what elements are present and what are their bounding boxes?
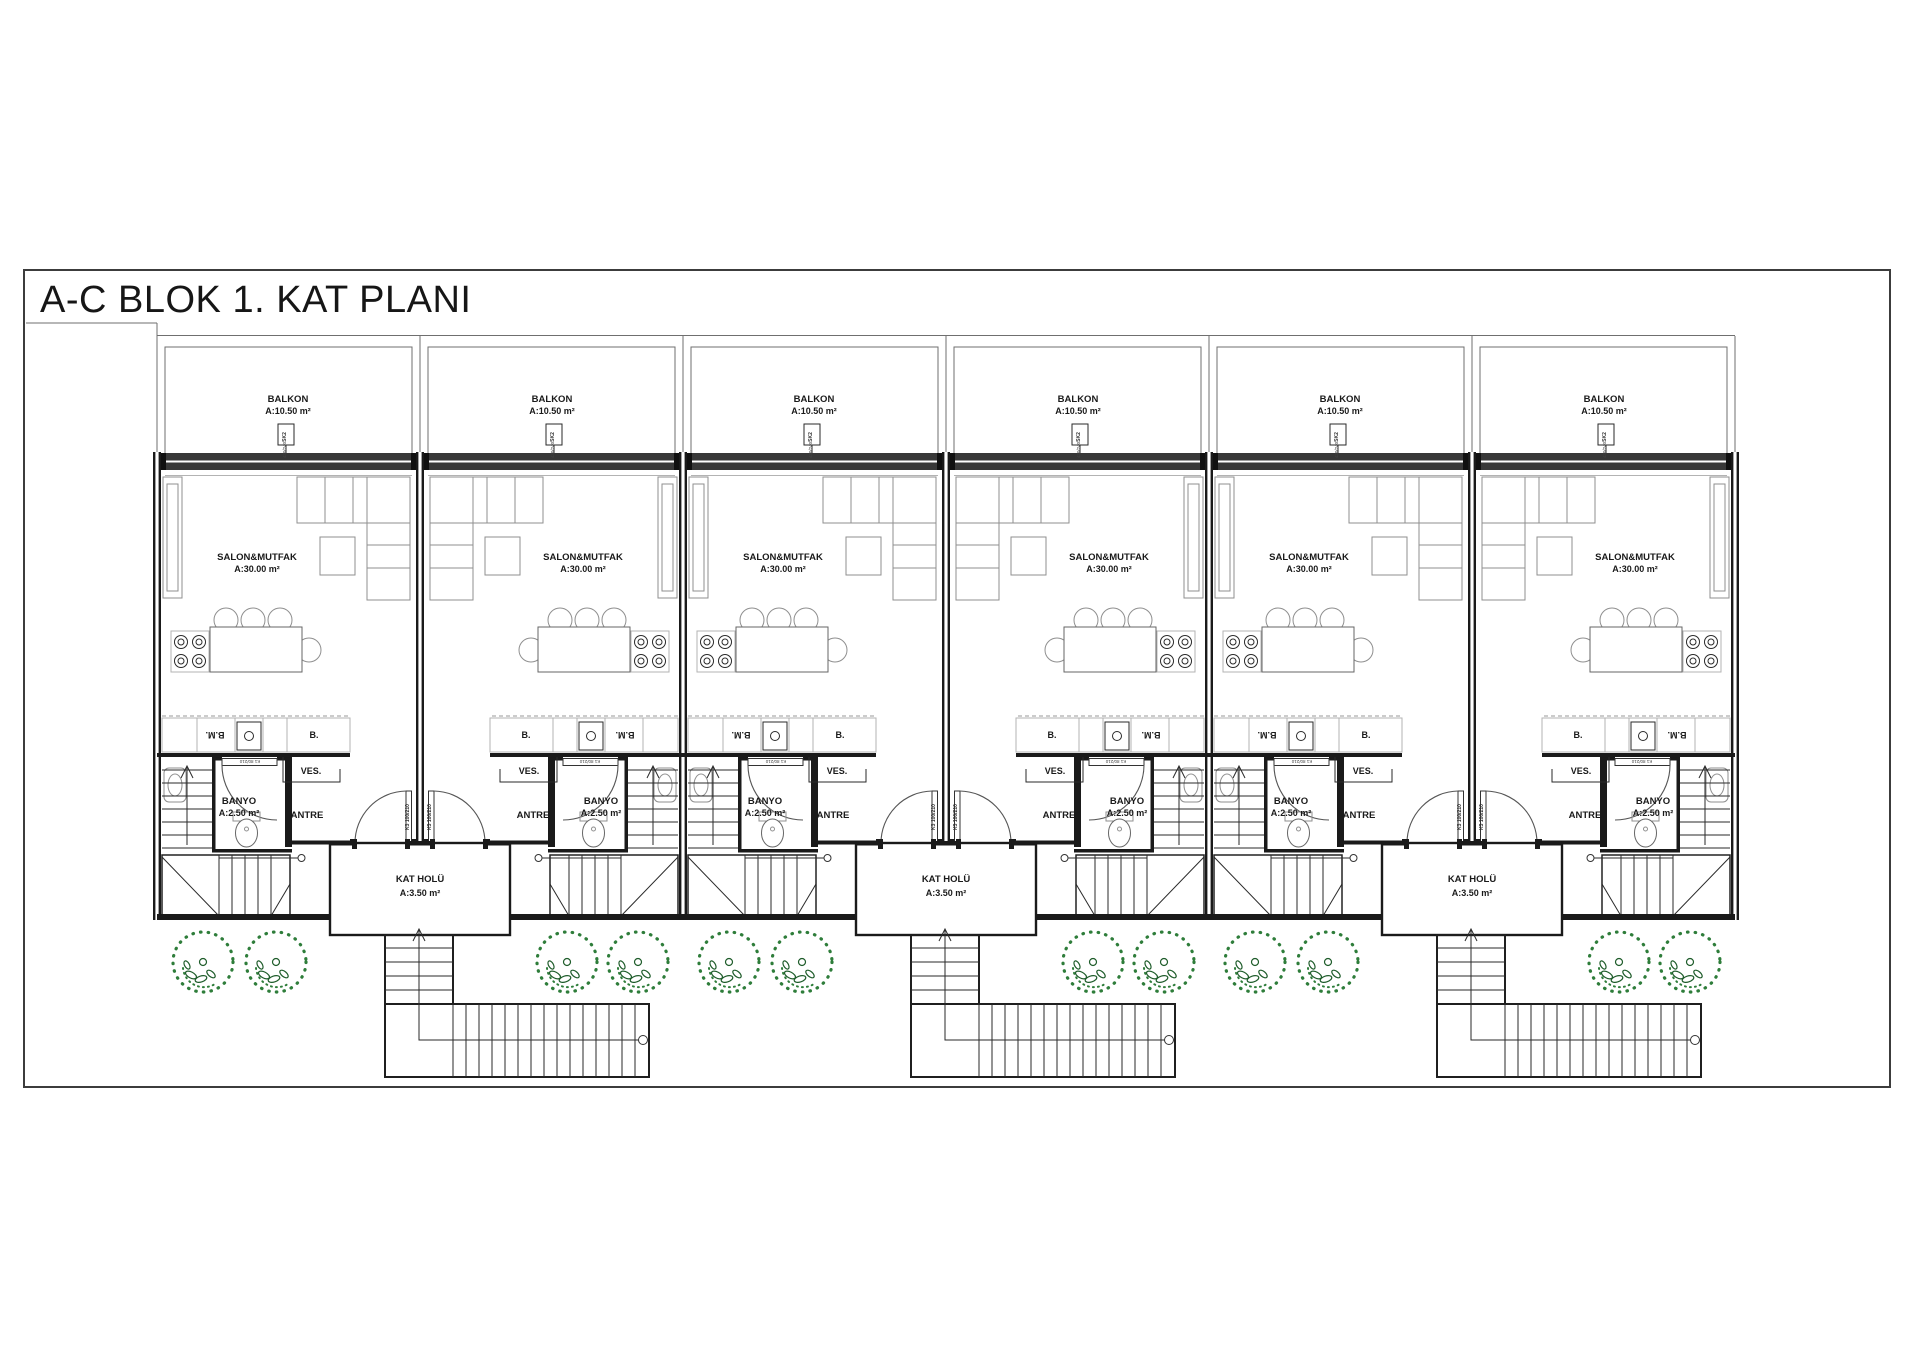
- balcony-area: A:10.50 m²: [1055, 406, 1101, 416]
- window-dims: 430/240: [1334, 441, 1339, 458]
- counter-bm-label: B.M.: [1668, 730, 1687, 740]
- balcony-label: BALKON: [268, 394, 309, 405]
- balcony-label: BALKON: [1320, 394, 1361, 405]
- banyo-door-tag: K1 80/210: [1631, 759, 1652, 764]
- balcony-label: BALKON: [794, 394, 835, 405]
- window-tag: SK2: [282, 432, 288, 442]
- banyo-door-tag: K1 80/210: [765, 759, 786, 764]
- salon-label: SALON&MUTFAK: [743, 552, 823, 563]
- counter-bm-label: B.M.: [616, 730, 635, 740]
- floor-plan-drawing: A-C BLOK 1. KAT PLANI BALKON A:10.50 m² …: [0, 0, 1920, 1357]
- wall: [679, 336, 687, 920]
- salon-area: A:30.00 m²: [1086, 564, 1132, 574]
- banyo-label: BANYO: [1274, 796, 1308, 807]
- banyo-label: BANYO: [222, 796, 256, 807]
- antre-label: ANTRE: [817, 810, 850, 821]
- balcony-label: BALKON: [1058, 394, 1099, 405]
- hall-door-tag: K3 100/210: [1479, 804, 1485, 830]
- salon-label: SALON&MUTFAK: [543, 552, 623, 563]
- window-tag: SK2: [1334, 432, 1340, 442]
- antre-label: ANTRE: [1043, 810, 1076, 821]
- antre-label: ANTRE: [1343, 810, 1376, 821]
- banyo-door-tag: K1 80/210: [239, 759, 260, 764]
- counter-b-label: B.: [836, 730, 845, 740]
- hall-door-tag: K3 100/210: [405, 804, 411, 830]
- antre-label: ANTRE: [1569, 810, 1602, 821]
- window-dims: 430/240: [282, 441, 287, 458]
- window-tag: SK2: [550, 432, 556, 442]
- counter-b-label: B.: [310, 730, 319, 740]
- unit-6: [1472, 336, 1735, 921]
- counter-b-label: B.: [1362, 730, 1371, 740]
- banyo-label: BANYO: [1636, 796, 1670, 807]
- wall: [1731, 336, 1739, 920]
- counter-b-label: B.: [1048, 730, 1057, 740]
- ves-label: VES.: [827, 766, 848, 776]
- hall-area: A:3.50 m²: [1452, 888, 1493, 898]
- unit-5: [1209, 336, 1472, 921]
- counter-bm-label: B.M.: [732, 730, 751, 740]
- banyo-area: A:2.50 m²: [745, 808, 786, 818]
- banyo-area: A:2.50 m²: [581, 808, 622, 818]
- hall-door-tag: K3 100/210: [953, 804, 959, 830]
- banyo-door-tag: K1 80/210: [579, 759, 600, 764]
- salon-area: A:30.00 m²: [1286, 564, 1332, 574]
- balcony-area: A:10.50 m²: [265, 406, 311, 416]
- balcony-label: BALKON: [1584, 394, 1625, 405]
- salon-label: SALON&MUTFAK: [1269, 552, 1349, 563]
- banyo-area: A:2.50 m²: [1633, 808, 1674, 818]
- salon-area: A:30.00 m²: [234, 564, 280, 574]
- ves-label: VES.: [519, 766, 540, 776]
- counter-b-label: B.: [522, 730, 531, 740]
- wall: [416, 336, 424, 920]
- hall-label: KAT HOLÜ: [922, 874, 971, 885]
- ves-label: VES.: [1571, 766, 1592, 776]
- window-tag: SK2: [1076, 432, 1082, 442]
- unit-4: [946, 336, 1209, 921]
- salon-label: SALON&MUTFAK: [217, 552, 297, 563]
- banyo-area: A:2.50 m²: [1107, 808, 1148, 818]
- banyo-label: BANYO: [748, 796, 782, 807]
- wall: [942, 336, 950, 920]
- wall: [153, 336, 161, 920]
- banyo-door-tag: K1 80/210: [1291, 759, 1312, 764]
- salon-area: A:30.00 m²: [1612, 564, 1658, 574]
- window-tag: SK2: [808, 432, 814, 442]
- unit-1: [157, 336, 420, 921]
- floor-plan-page: A-C BLOK 1. KAT PLANI BALKON A:10.50 m² …: [0, 0, 1920, 1357]
- counter-b-label: B.: [1574, 730, 1583, 740]
- salon-label: SALON&MUTFAK: [1069, 552, 1149, 563]
- salon-label: SALON&MUTFAK: [1595, 552, 1675, 563]
- banyo-area: A:2.50 m²: [219, 808, 260, 818]
- hall-door-tag: K3 100/210: [1457, 804, 1463, 830]
- ves-label: VES.: [1353, 766, 1374, 776]
- window-dims: 430/240: [808, 441, 813, 458]
- banyo-label: BANYO: [1110, 796, 1144, 807]
- hall-area: A:3.50 m²: [400, 888, 441, 898]
- balcony-area: A:10.50 m²: [791, 406, 837, 416]
- hall-door-tag: K3 100/210: [931, 804, 937, 830]
- hall-label: KAT HOLÜ: [396, 874, 445, 885]
- hall-label: KAT HOLÜ: [1448, 874, 1497, 885]
- unit-3: [683, 336, 946, 921]
- wall: [1468, 336, 1476, 920]
- balcony-label: BALKON: [532, 394, 573, 405]
- antre-label: ANTRE: [517, 810, 550, 821]
- window-dims: 430/240: [1602, 441, 1607, 458]
- window-dims: 430/240: [1076, 441, 1081, 458]
- balcony-area: A:10.50 m²: [1317, 406, 1363, 416]
- salon-area: A:30.00 m²: [760, 564, 806, 574]
- counter-bm-label: B.M.: [1258, 730, 1277, 740]
- salon-area: A:30.00 m²: [560, 564, 606, 574]
- counter-bm-label: B.M.: [1142, 730, 1161, 740]
- plan-title: A-C BLOK 1. KAT PLANI: [40, 279, 471, 321]
- banyo-door-tag: K1 80/210: [1105, 759, 1126, 764]
- counter-bm-label: B.M.: [206, 730, 225, 740]
- balcony-area: A:10.50 m²: [529, 406, 575, 416]
- ves-label: VES.: [301, 766, 322, 776]
- sheet-border: [24, 270, 1890, 1087]
- window-tag: SK2: [1602, 432, 1608, 442]
- hall-area: A:3.50 m²: [926, 888, 967, 898]
- window-dims: 430/240: [550, 441, 555, 458]
- balcony-area: A:10.50 m²: [1581, 406, 1627, 416]
- hall-door-tag: K3 100/210: [427, 804, 433, 830]
- banyo-label: BANYO: [584, 796, 618, 807]
- antre-label: ANTRE: [291, 810, 324, 821]
- wall: [1205, 336, 1213, 920]
- unit-2: [420, 336, 683, 921]
- ves-label: VES.: [1045, 766, 1066, 776]
- banyo-area: A:2.50 m²: [1271, 808, 1312, 818]
